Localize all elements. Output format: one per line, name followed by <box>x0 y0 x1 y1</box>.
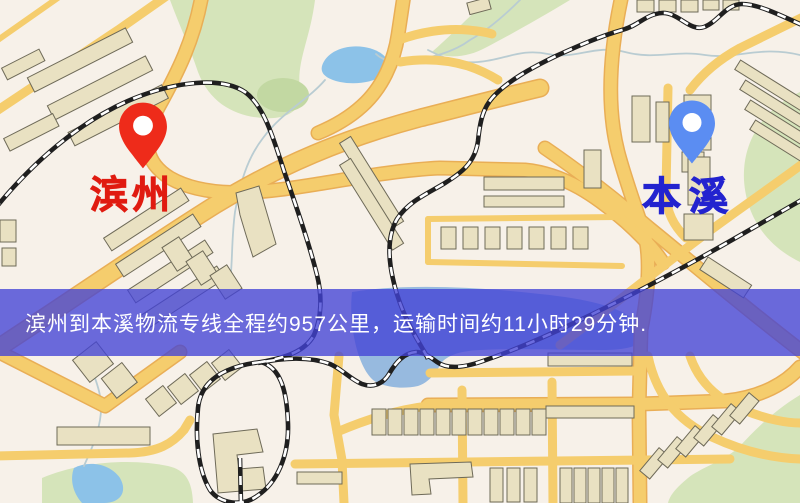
route-info-banner: 滨州到本溪物流专线全程约957公里，运输时间约11小时29分钟. <box>0 289 800 356</box>
map-pin-icon <box>668 99 716 166</box>
destination-pin <box>668 99 716 166</box>
route-map-image: 滨州到本溪物流专线全程约957公里，运输时间约11小时29分钟. 滨州 本溪 <box>0 0 800 503</box>
destination-city-label: 本溪 <box>642 178 736 217</box>
map-pin-icon <box>118 101 168 171</box>
origin-city-label: 滨州 <box>90 177 174 215</box>
origin-pin <box>118 101 168 171</box>
map-canvas <box>0 0 800 503</box>
route-info-text: 滨州到本溪物流专线全程约957公里，运输时间约11小时29分钟. <box>0 289 800 356</box>
